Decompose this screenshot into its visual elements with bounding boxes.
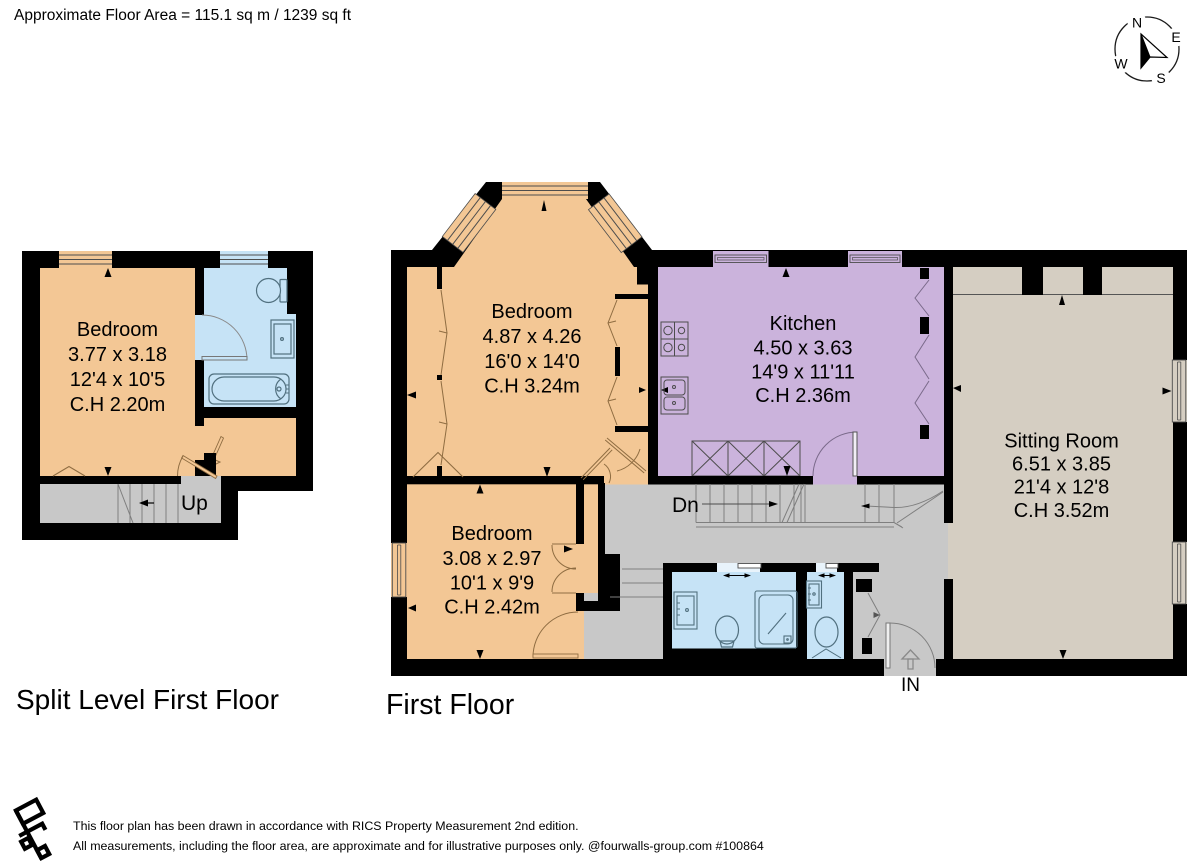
svg-text:C.H 2.42m: C.H 2.42m bbox=[444, 597, 540, 619]
svg-text:16'0 x 14'0: 16'0 x 14'0 bbox=[484, 351, 580, 373]
svg-text:W: W bbox=[1114, 56, 1128, 72]
svg-text:3.77 x 3.18: 3.77 x 3.18 bbox=[68, 344, 167, 366]
svg-text:Bedroom: Bedroom bbox=[77, 319, 158, 341]
svg-text:Bedroom: Bedroom bbox=[451, 523, 532, 545]
svg-text:6.51 x 3.85: 6.51 x 3.85 bbox=[1012, 454, 1111, 476]
svg-text:Sitting Room: Sitting Room bbox=[1004, 431, 1119, 453]
svg-text:C.H 3.24m: C.H 3.24m bbox=[484, 376, 580, 398]
svg-text:4.50 x 3.63: 4.50 x 3.63 bbox=[754, 338, 853, 360]
svg-text:Split Level First Floor: Split Level First Floor bbox=[16, 684, 279, 715]
svg-text:C.H 3.52m: C.H 3.52m bbox=[1014, 500, 1110, 522]
svg-text:All measurements, including th: All measurements, including the floor ar… bbox=[73, 839, 764, 853]
svg-text:10'1 x 9'9: 10'1 x 9'9 bbox=[450, 573, 534, 595]
svg-text:14'9 x 11'11: 14'9 x 11'11 bbox=[751, 362, 855, 384]
svg-text:21'4 x 12'8: 21'4 x 12'8 bbox=[1014, 477, 1110, 499]
svg-text:3.08 x 2.97: 3.08 x 2.97 bbox=[443, 548, 542, 570]
svg-text:Up: Up bbox=[181, 492, 208, 515]
svg-text:This floor plan has been drawn: This floor plan has been drawn in accord… bbox=[73, 819, 579, 833]
svg-text:Kitchen: Kitchen bbox=[770, 313, 837, 335]
svg-text:C.H 2.20m: C.H 2.20m bbox=[70, 394, 166, 416]
svg-text:E: E bbox=[1171, 29, 1180, 45]
svg-text:Bedroom: Bedroom bbox=[491, 301, 572, 323]
svg-text:Approximate Floor Area = 115.1: Approximate Floor Area = 115.1 sq m / 12… bbox=[14, 7, 352, 24]
svg-text:12'4 x 10'5: 12'4 x 10'5 bbox=[70, 369, 166, 391]
svg-text:N: N bbox=[1132, 15, 1142, 31]
svg-text:C.H 2.36m: C.H 2.36m bbox=[755, 385, 851, 407]
svg-text:First Floor: First Floor bbox=[386, 689, 515, 721]
svg-text:S: S bbox=[1156, 70, 1165, 86]
svg-text:Dn: Dn bbox=[672, 494, 699, 517]
svg-text:4.87 x 4.26: 4.87 x 4.26 bbox=[483, 326, 582, 348]
svg-text:IN: IN bbox=[901, 675, 920, 696]
